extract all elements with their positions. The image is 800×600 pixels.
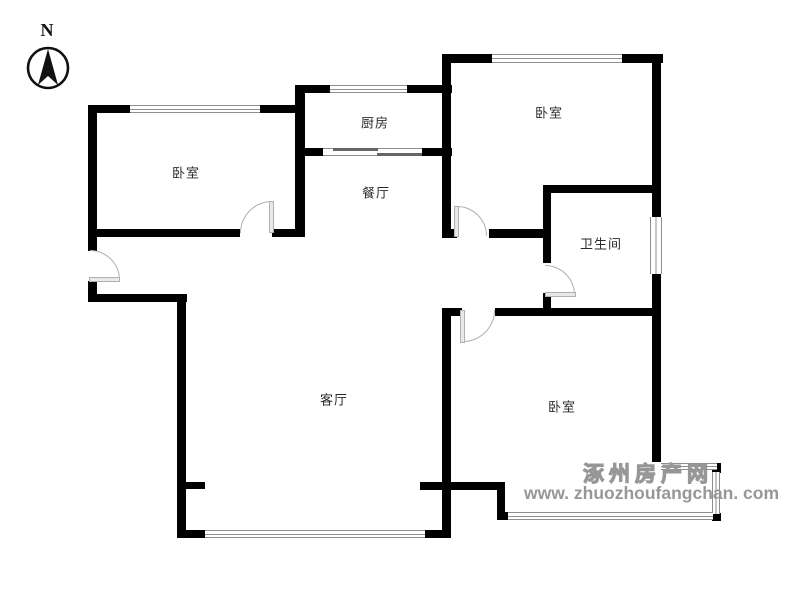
room-label-bedroom-bottom-right: 卧室 xyxy=(548,397,576,416)
wall-segment xyxy=(543,185,661,193)
sliding-door-panel xyxy=(377,153,422,156)
door-leaf xyxy=(269,201,274,233)
room-label-bedroom-top-right: 卧室 xyxy=(535,103,563,122)
wall-segment xyxy=(420,482,505,490)
window xyxy=(330,85,407,93)
window xyxy=(508,512,713,520)
window xyxy=(130,105,260,113)
window xyxy=(650,217,662,274)
window xyxy=(205,530,425,538)
wall-segment xyxy=(272,229,305,237)
wall-segment xyxy=(442,54,451,238)
wall-segment xyxy=(543,193,551,263)
floor-plan: N xyxy=(0,0,800,600)
wall-segment xyxy=(442,54,492,63)
door-arc xyxy=(463,310,495,342)
wall-segment xyxy=(295,85,305,237)
wall-segment xyxy=(442,308,451,538)
wall-segment xyxy=(88,294,187,302)
compass-icon xyxy=(24,44,72,92)
wall-segment xyxy=(652,274,661,462)
wall-segment xyxy=(712,513,721,521)
door-arc xyxy=(457,206,487,236)
door-leaf xyxy=(460,310,465,343)
wall-segment xyxy=(489,229,543,238)
room-label-bathroom: 卫生间 xyxy=(580,234,622,253)
wall-segment xyxy=(305,148,323,156)
door-arc xyxy=(545,265,575,295)
wall-segment xyxy=(495,308,661,316)
room-label-dining: 餐厅 xyxy=(362,183,390,202)
watermark-site-url: www. zhuozhoufangchan. com xyxy=(524,483,779,504)
room-label-living: 客厅 xyxy=(320,390,348,409)
compass-north-label: N xyxy=(30,20,64,41)
door-leaf xyxy=(545,292,576,297)
room-label-bedroom-left: 卧室 xyxy=(172,163,200,182)
wall-segment xyxy=(177,294,186,538)
door-leaf xyxy=(89,277,120,282)
wall-segment xyxy=(425,530,450,538)
door-arc xyxy=(90,250,120,280)
room-label-kitchen: 厨房 xyxy=(361,113,389,132)
sliding-door-panel xyxy=(333,148,378,151)
window xyxy=(492,54,622,63)
wall-segment xyxy=(295,85,330,93)
door-leaf xyxy=(454,206,459,237)
wall-segment xyxy=(88,229,240,237)
door-arc xyxy=(240,201,272,233)
